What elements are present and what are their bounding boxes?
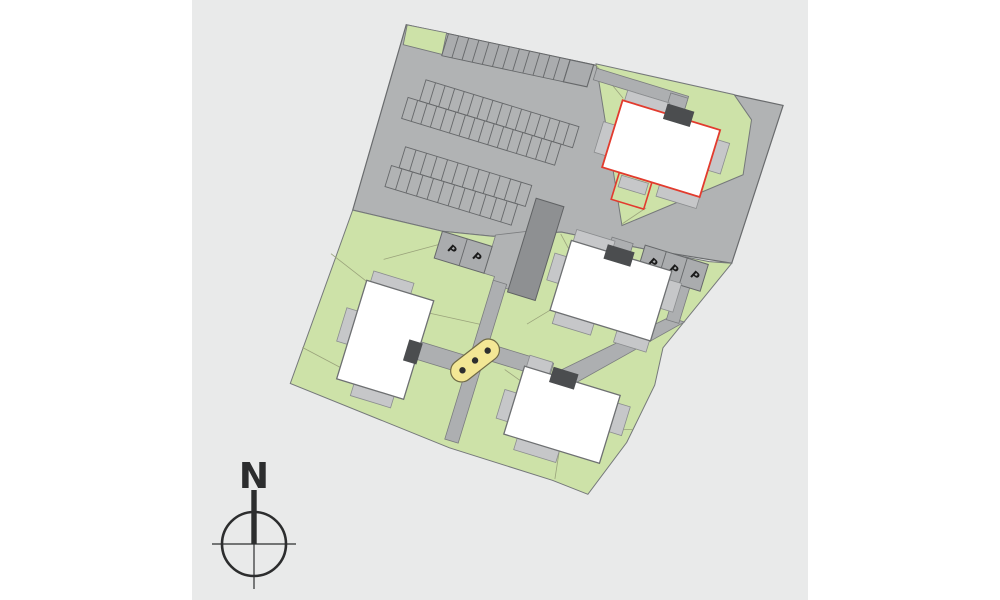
- site-plan-svg: PPPPPN: [0, 0, 1000, 600]
- compass-needle: [251, 490, 256, 544]
- site-rotated-group: PPPPP: [285, 0, 783, 516]
- screenshot-canvas: PPPPPN: [0, 0, 1000, 600]
- compass-north-label: N: [239, 456, 269, 497]
